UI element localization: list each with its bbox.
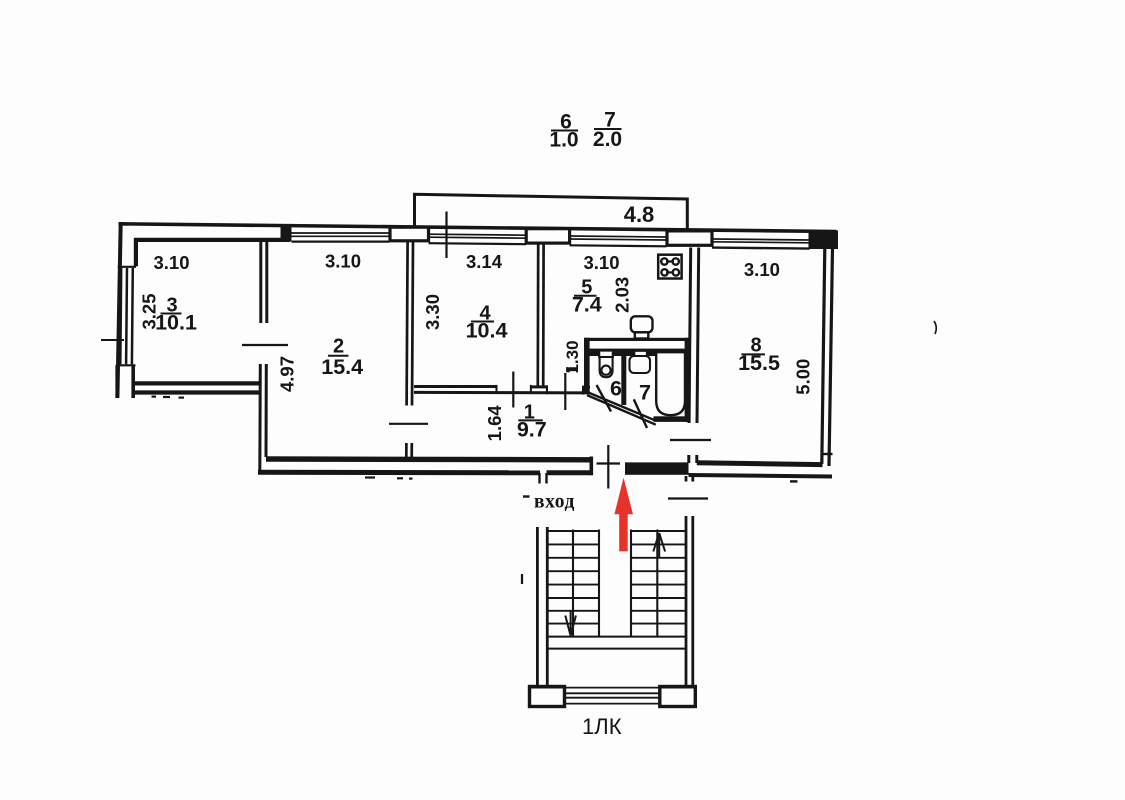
svg-text:1.0: 1.0	[549, 129, 578, 152]
svg-text:2.03: 2.03	[611, 277, 632, 313]
svg-text:3.10: 3.10	[583, 252, 619, 273]
svg-text:вход: вход	[534, 492, 575, 513]
svg-text:3.10: 3.10	[325, 251, 361, 272]
svg-text:4.8: 4.8	[624, 202, 655, 227]
svg-text:6: 6	[610, 377, 622, 401]
svg-text:1.30: 1.30	[563, 340, 582, 373]
svg-text:7: 7	[639, 381, 651, 405]
svg-text:5.00: 5.00	[793, 359, 814, 395]
svg-text:3.10: 3.10	[153, 252, 189, 273]
svg-text:3.30: 3.30	[422, 294, 443, 330]
svg-text:15.4: 15.4	[321, 355, 363, 379]
svg-text:3.14: 3.14	[466, 251, 503, 272]
svg-text:3.25: 3.25	[139, 293, 160, 329]
svg-text:3.10: 3.10	[744, 259, 780, 280]
svg-text:1.64: 1.64	[484, 405, 505, 442]
svg-text:4.97: 4.97	[277, 356, 298, 392]
svg-text:1ЛК: 1ЛК	[582, 714, 622, 739]
svg-text:2.0: 2.0	[593, 128, 622, 151]
